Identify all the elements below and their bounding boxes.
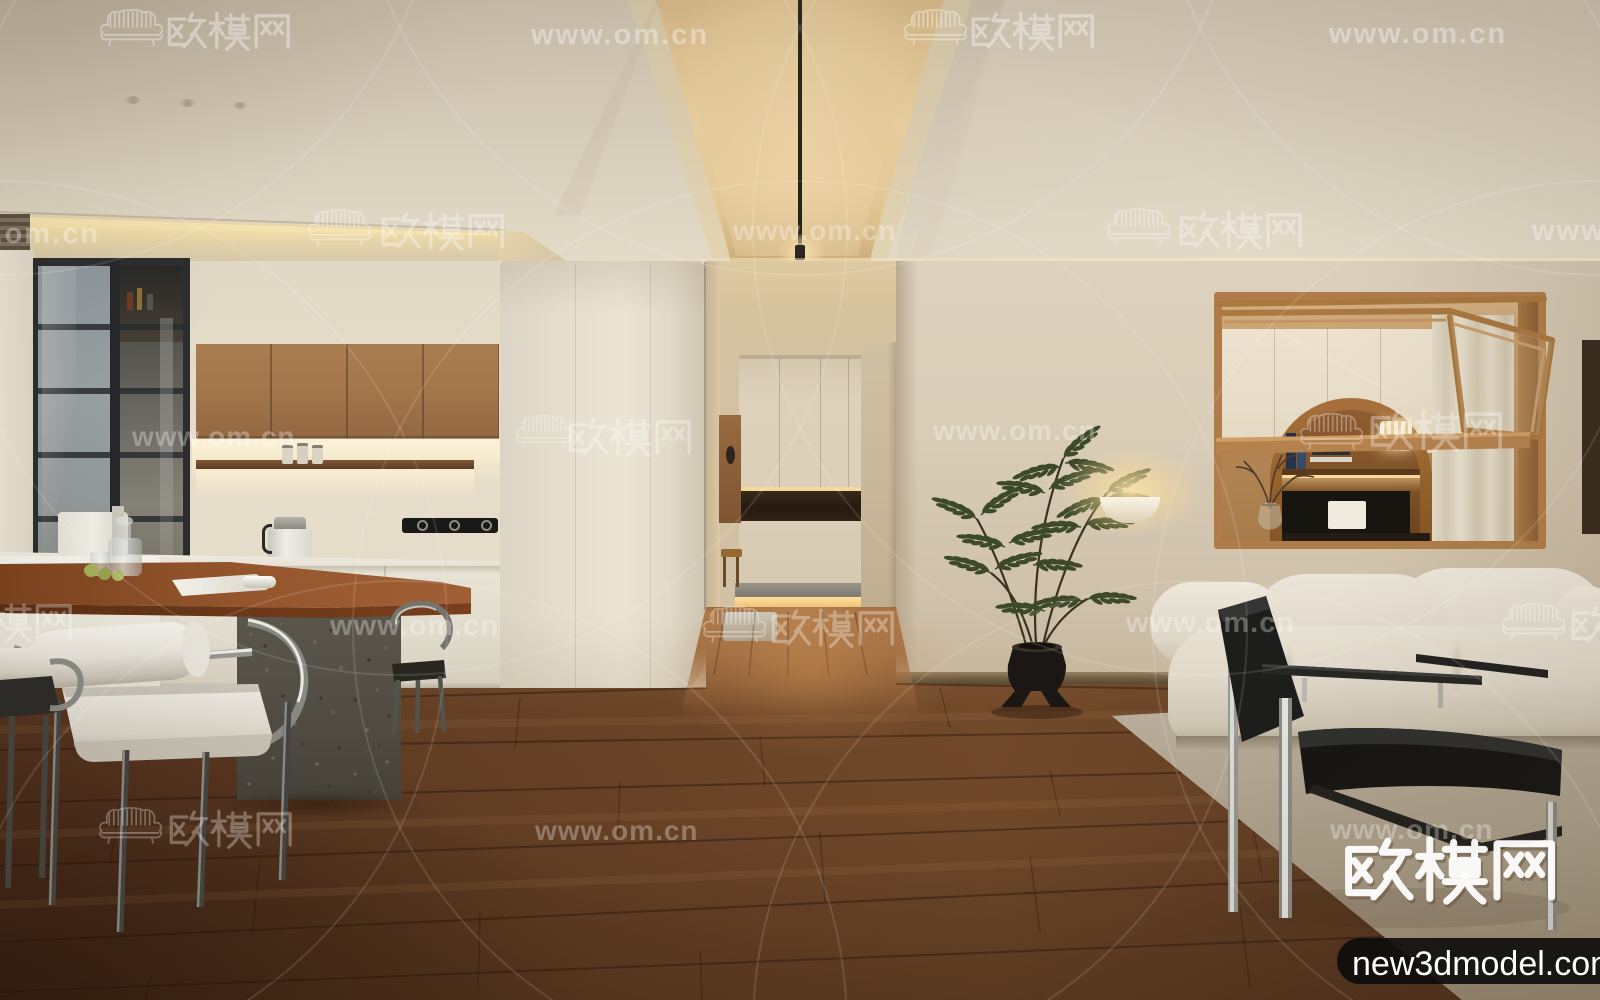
svg-text:www.om.cn: www.om.cn [131,421,296,452]
svg-text:www.om.cn: www.om.cn [1328,18,1507,50]
svg-text:www.om.cn: www.om.cn [0,218,100,250]
svg-text:www.om.cn: www.om.cn [530,19,709,51]
svg-text:www.om.cn: www.om.cn [732,215,897,246]
svg-text:www.om.cn: www.om.cn [329,610,499,642]
svg-text:www.om.cn: www.om.cn [534,815,699,846]
svg-text:www.om.cn: www.om.cn [1125,607,1295,639]
svg-text:www.om.cn: www.om.cn [932,415,1097,446]
svg-text:www.: www. [1531,215,1600,247]
svg-text:www.om.cn: www.om.cn [1329,814,1494,845]
